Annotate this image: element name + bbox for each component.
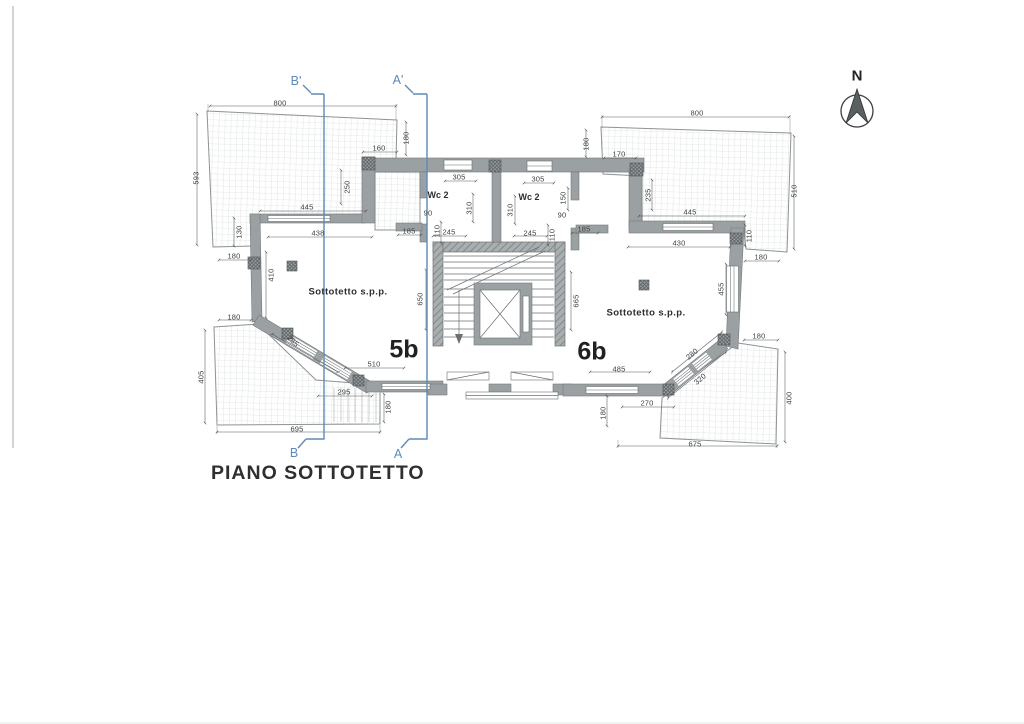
dim-label: 235 [644, 188, 653, 201]
dim-label: 510 [367, 360, 380, 369]
wc-label-6b: Wc 2 [518, 192, 539, 202]
room-label-5b: Sottotetto s.p.p. [308, 287, 387, 298]
wc-label-5b: Wc 2 [427, 190, 448, 200]
low-height-area [375, 172, 420, 230]
dim-label: 110 [433, 225, 442, 238]
dim-label: 180 [384, 400, 393, 413]
dim-label: 110 [745, 230, 754, 243]
dim-label: 250 [343, 180, 352, 193]
unit-label-5b: 5b [389, 336, 418, 365]
dim-label: 305 [531, 175, 544, 184]
elevator [474, 283, 532, 345]
dim-label: 180 [752, 332, 765, 341]
dim-label: 130 [235, 225, 244, 238]
page-title: PIANO SOTTOTETTO [211, 462, 425, 485]
dim-label: 310 [465, 201, 474, 214]
floor-plan-sheet: PIANO SOTTOTETTO N B' A' B A 5b 6b Sotto… [0, 0, 1024, 724]
dim-label: 295 [337, 388, 350, 397]
dim-label: 800 [690, 109, 703, 118]
dim-label: 160 [372, 144, 385, 153]
dim-label: 405 [197, 370, 206, 383]
dim-label: 650 [416, 292, 425, 305]
dim-label: 180 [754, 253, 767, 262]
section-marker-b-prime: B' [291, 74, 302, 88]
dim-label: 180 [582, 137, 591, 150]
north-label: N [852, 68, 863, 85]
dim-label: 445 [683, 208, 696, 217]
dim-label: 270 [640, 399, 653, 408]
dim-label: 150 [559, 191, 568, 204]
terrace-bottom-right [660, 343, 778, 444]
dim-label: 665 [572, 294, 581, 307]
north-arrow-icon [841, 89, 873, 127]
dim-label: 180 [402, 131, 411, 144]
dim-label: 510 [790, 184, 799, 197]
section-marker-b: B [290, 446, 298, 460]
dim-label: 180 [599, 406, 608, 419]
dim-label: 445 [300, 203, 313, 212]
dim-label: 180 [227, 313, 240, 322]
floor-plan-drawing [0, 0, 1024, 724]
dim-label: 110 [548, 229, 557, 242]
dim-label: 170 [612, 150, 625, 159]
dim-label: 185 [577, 225, 590, 234]
dim-label: 185 [402, 227, 415, 236]
dim-label: 310 [506, 203, 515, 216]
dim-label: 438 [311, 229, 324, 238]
room-label-6b: Sottotetto s.p.p. [606, 308, 685, 319]
unit-label-6b: 6b [577, 338, 606, 367]
dim-label: 245 [523, 229, 536, 238]
dim-label: 675 [688, 440, 701, 449]
dim-label: 695 [290, 425, 303, 434]
section-marker-a: A [394, 447, 402, 461]
dim-label: 410 [267, 268, 276, 281]
dim-label: 455 [717, 282, 726, 295]
dim-label: 180 [227, 252, 240, 261]
dim-label: 485 [612, 365, 625, 374]
dim-label: 245 [442, 228, 455, 237]
dim-label: 800 [273, 99, 286, 108]
dim-label: 400 [785, 391, 794, 404]
section-marker-a-prime: A' [393, 73, 404, 87]
dim-label: 593 [192, 171, 201, 184]
dim-label: 305 [452, 173, 465, 182]
dim-label: 90 [424, 209, 433, 218]
dim-label: 90 [558, 211, 567, 220]
dim-label: 430 [672, 239, 685, 248]
